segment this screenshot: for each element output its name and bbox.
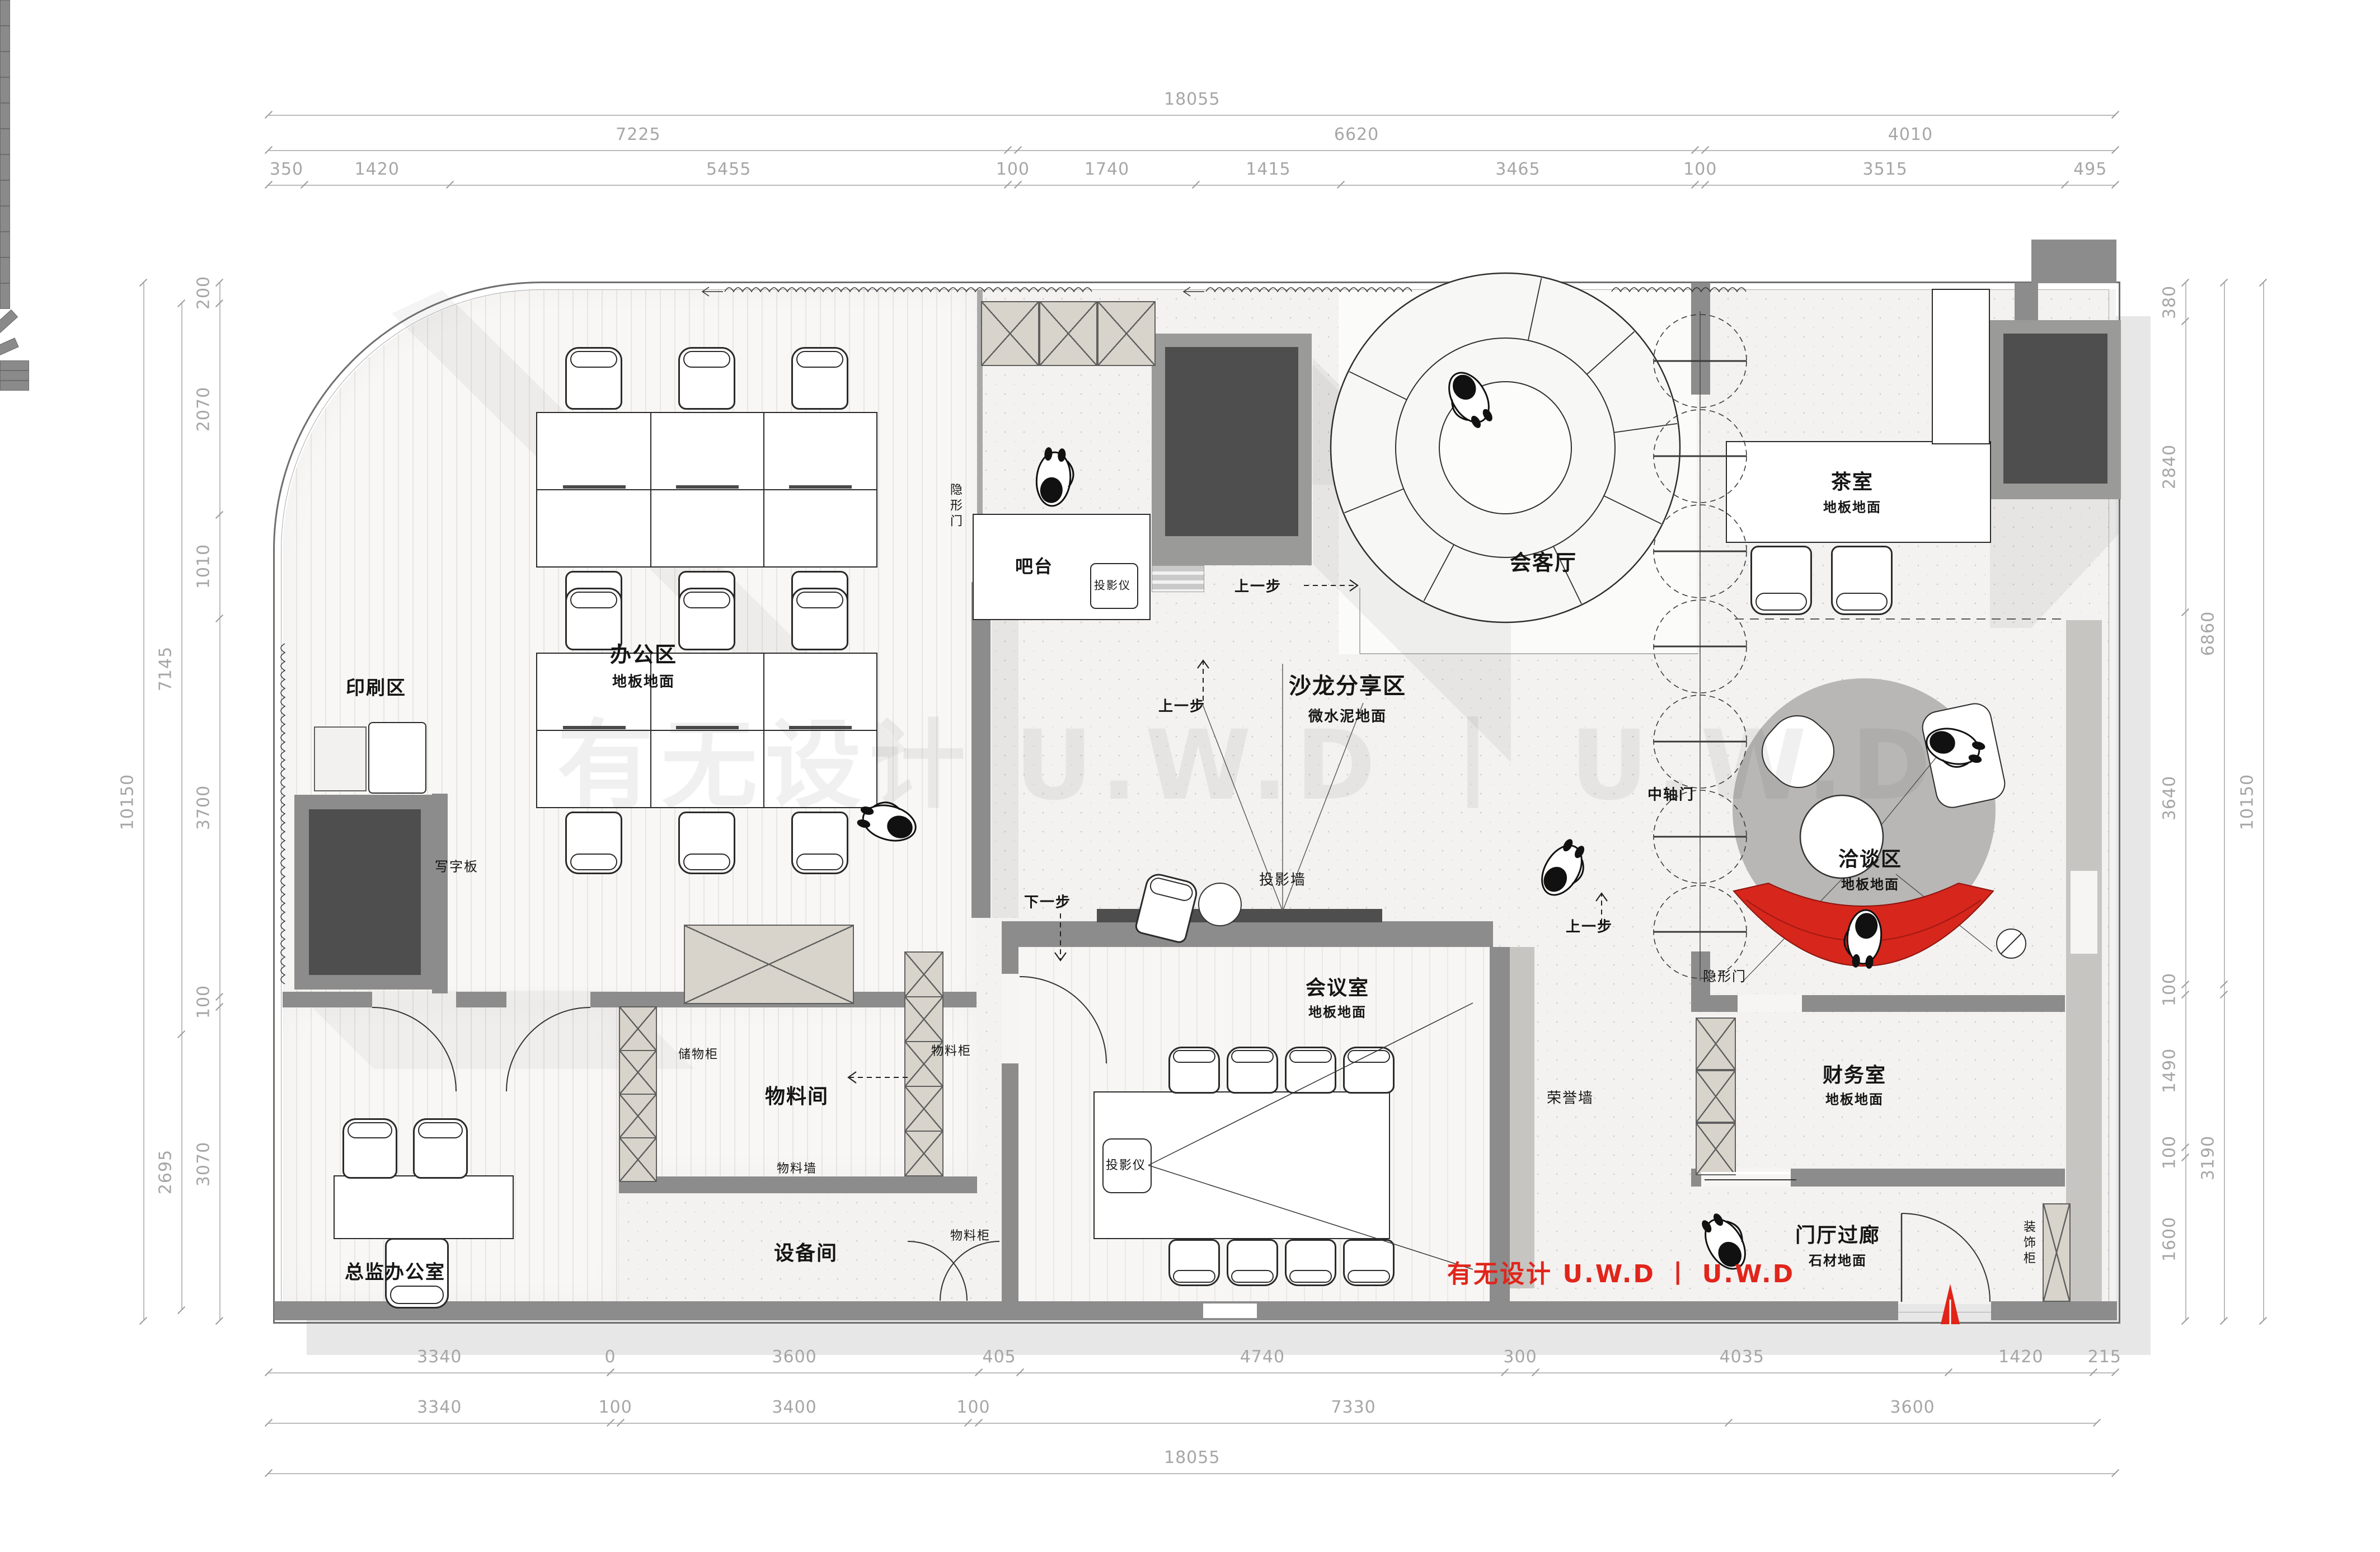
dim-label: 100 (194, 985, 214, 1019)
note-step-up-3: 上一步 (1566, 916, 1613, 936)
dim-line (269, 1423, 2097, 1424)
note-storage-cabinet: 储物柜 (678, 1044, 719, 1062)
floor-note-meeting: 地板地面 (1308, 1001, 1367, 1021)
dim-label: 100 (1683, 160, 1717, 179)
dim-label: 3515 (1863, 160, 1908, 179)
note-step-up-1: 上一步 (1234, 575, 1281, 596)
dim-line (2263, 283, 2264, 1321)
room-label-office: 办公区 (610, 637, 677, 668)
watermark-center: 有无设计 U.W.D 丨 U.W.D (557, 687, 1938, 827)
person-figure (1034, 447, 1076, 508)
dim-label: 1740 (1085, 160, 1129, 179)
dim-line (181, 303, 182, 1310)
dim-label: 0 (605, 1347, 616, 1367)
note-material-cabinet-2: 物料柜 (950, 1226, 991, 1244)
dim-label: 300 (1503, 1347, 1537, 1367)
dim-label: 1010 (194, 544, 214, 589)
room-label-material: 物料间 (765, 1080, 829, 1109)
room-label-tea: 茶室 (1831, 466, 1874, 495)
dim-line (269, 1473, 2115, 1474)
dim-label: 3190 (2199, 1136, 2218, 1180)
note-hidden-door-left: 隐形门 (946, 483, 964, 530)
dim-label: 100 (2160, 973, 2180, 1006)
dim-line (2224, 283, 2225, 1321)
dim-label: 2695 (156, 1150, 176, 1194)
note-honor-wall: 荣誉墙 (1547, 1087, 1594, 1108)
dim-line (269, 115, 2115, 116)
room-label-reception: 会客厅 (1510, 546, 1577, 576)
note-hidden-door-right: 隐形门 (1703, 965, 1747, 985)
dim-label: 405 (983, 1347, 1016, 1367)
floor-note-negotiation: 地板地面 (1841, 874, 1899, 893)
dim-label: 6620 (1334, 125, 1379, 144)
dim-label: 3400 (772, 1398, 816, 1417)
dim-label: 200 (194, 276, 214, 310)
dim-label: 3340 (417, 1347, 462, 1367)
dim-label: 100 (956, 1398, 990, 1417)
dim-label: 10150 (2238, 773, 2257, 829)
room-label-director: 总监办公室 (345, 1257, 445, 1284)
dim-label: 10150 (118, 773, 138, 829)
note-step-down: 下一步 (1024, 891, 1071, 912)
room-label-print: 印刷区 (346, 673, 406, 700)
room-label-negotiation: 洽谈区 (1838, 843, 1902, 872)
dim-label: 18055 (1164, 90, 1220, 109)
dim-line (269, 185, 2115, 186)
floor-note-finance: 地板地面 (1825, 1089, 1884, 1108)
dim-label: 2070 (194, 387, 214, 432)
note-projection-wall: 投影墙 (1259, 869, 1306, 889)
dim-line (219, 283, 220, 1321)
dim-label: 3640 (2160, 776, 2180, 820)
note-material-wall: 物料墙 (777, 1159, 817, 1176)
floor-plan: 有无设计 U.W.D 丨 U.W.D 有无设计 U.W.D 丨 U.W.D 办公… (0, 0, 2380, 1552)
dim-label: 4740 (1240, 1347, 1285, 1367)
dim-label: 3600 (772, 1347, 816, 1367)
dim-label: 3465 (1495, 160, 1540, 179)
dim-label: 215 (2088, 1347, 2121, 1367)
dim-label: 7145 (156, 646, 176, 691)
dim-label: 380 (2160, 285, 2180, 319)
dim-label: 1415 (1246, 160, 1290, 179)
note-deco-cabinet: 装饰柜 (2019, 1220, 2037, 1267)
room-label-meeting: 会议室 (1306, 972, 1369, 1001)
dim-label: 4010 (1888, 125, 1933, 144)
room-label-lobby: 门厅过廊 (1795, 1219, 1880, 1248)
dim-label: 4035 (1720, 1347, 1764, 1367)
dim-label: 3600 (1890, 1398, 1935, 1417)
dim-label: 3700 (194, 785, 214, 830)
room-label-equipment: 设备间 (774, 1237, 838, 1266)
dim-label: 1490 (2160, 1048, 2180, 1093)
dim-label: 1600 (2160, 1217, 2180, 1262)
person-figure (1534, 834, 1594, 903)
note-projector-meeting: 投影仪 (1106, 1155, 1146, 1173)
note-material-cabinet-1: 物料柜 (931, 1041, 971, 1059)
room-label-bar: 吧台 (1015, 552, 1053, 578)
dim-label: 3070 (194, 1142, 214, 1187)
note-projector-bar: 投影仪 (1094, 576, 1131, 593)
dim-label: 100 (2160, 1136, 2180, 1169)
dim-label: 1420 (1998, 1347, 2043, 1367)
watermark-red: 有无设计 U.W.D 丨 U.W.D (1447, 1254, 1795, 1290)
dim-label: 100 (599, 1398, 632, 1417)
dim-line (2185, 283, 2186, 1321)
note-writing-board: 写字板 (435, 856, 478, 875)
dim-line (269, 1372, 2115, 1373)
dim-label: 100 (996, 160, 1030, 179)
dim-label: 6860 (2199, 611, 2218, 656)
dim-label: 2840 (2160, 444, 2180, 489)
dim-label: 1420 (355, 160, 400, 179)
dim-label: 7330 (1331, 1398, 1376, 1417)
floor-note-tea: 地板地面 (1823, 496, 1881, 516)
dim-label: 7225 (616, 125, 660, 144)
dim-line (269, 150, 2115, 151)
dim-label: 3340 (417, 1398, 462, 1417)
room-label-finance: 财务室 (1823, 1059, 1886, 1088)
dim-label: 350 (270, 160, 303, 179)
floor-note-lobby: 石材地面 (1809, 1250, 1867, 1269)
dim-label: 495 (2073, 160, 2107, 179)
dim-label: 18055 (1164, 1448, 1220, 1467)
dim-line (143, 283, 144, 1321)
dim-label: 5455 (706, 160, 751, 179)
